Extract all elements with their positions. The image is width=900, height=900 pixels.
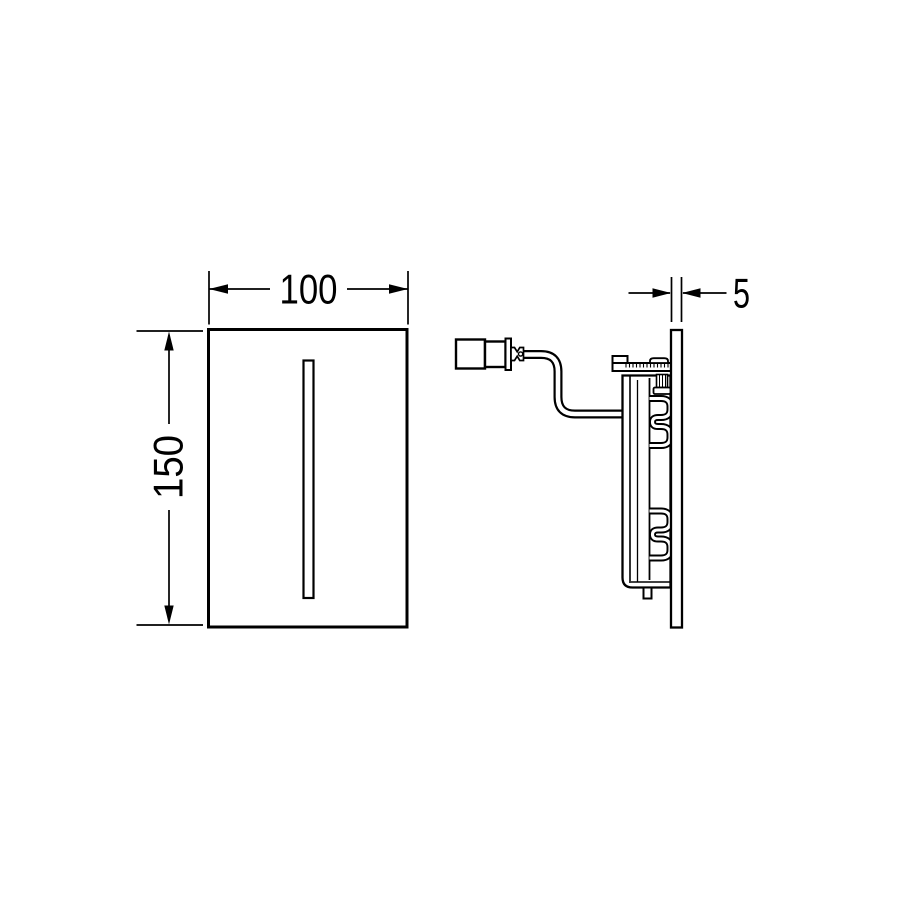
electronics-housing [623, 376, 671, 599]
sensor-slot [304, 361, 314, 599]
sensor-cable [523, 355, 625, 415]
arrowhead-down-icon [164, 606, 173, 625]
technical-drawing: 100 150 [0, 0, 900, 900]
mounting-bracket [613, 356, 672, 371]
connector-body [456, 340, 485, 369]
drawing-sheet: 100 150 [0, 0, 900, 900]
cable-outer [523, 355, 625, 415]
bracket-bar [613, 363, 672, 371]
flush-plate-side [671, 330, 682, 628]
screw-cap [654, 388, 671, 395]
cable-connector [456, 339, 524, 371]
housing-bottom-tab [644, 588, 652, 599]
thickness-extension-lines [672, 277, 682, 322]
dimension-width: 100 [209, 266, 408, 325]
width-dimension-label: 100 [280, 266, 338, 313]
adjustment-screw [654, 375, 671, 395]
bracket-dome [650, 358, 668, 363]
cable-core [523, 355, 625, 415]
arrowhead-right-icon [653, 288, 672, 297]
side-view [456, 330, 682, 628]
arrowhead-left-icon [682, 288, 701, 297]
front-view [209, 330, 408, 628]
dimension-height: 150 [137, 331, 204, 625]
height-dimension-label: 150 [145, 435, 192, 499]
connector-neck [485, 342, 506, 368]
thickness-dimension-label: 5 [733, 270, 750, 317]
arrowhead-left-icon [209, 284, 228, 293]
dimension-thickness: 5 [629, 270, 751, 323]
coupler-pin-icon [519, 352, 523, 356]
arrowhead-up-icon [164, 332, 173, 351]
arrowhead-right-icon [389, 284, 408, 293]
